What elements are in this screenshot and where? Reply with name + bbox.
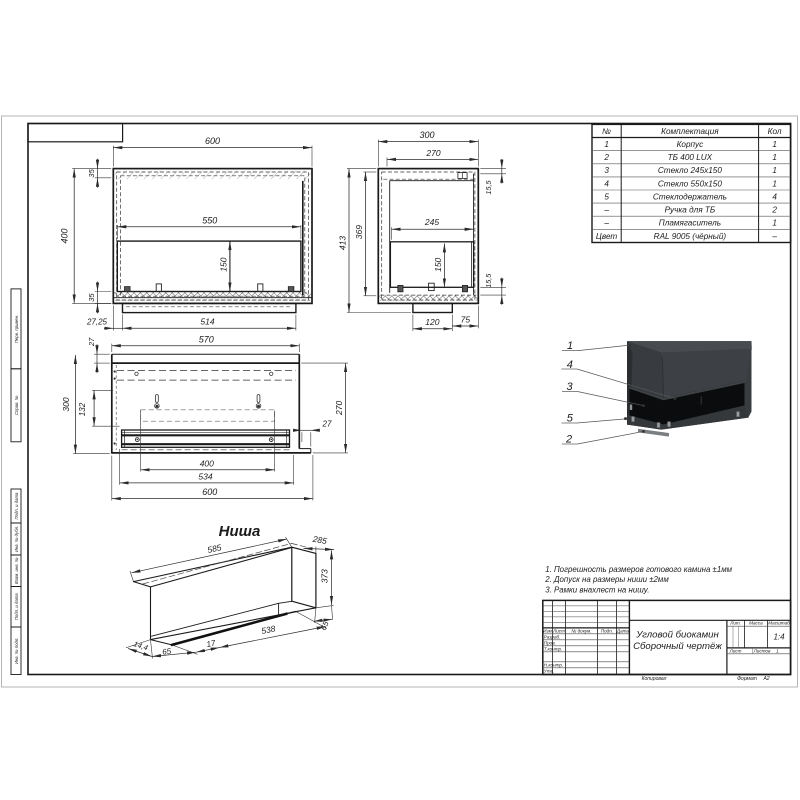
- svg-text:1: 1: [772, 179, 777, 188]
- svg-text:Кол: Кол: [768, 127, 782, 136]
- svg-text:534: 534: [198, 472, 212, 482]
- svg-text:35: 35: [87, 168, 96, 177]
- svg-text:373: 373: [320, 569, 330, 583]
- svg-text:2: 2: [603, 153, 609, 162]
- svg-text:Цвет: Цвет: [596, 232, 618, 241]
- svg-text:150: 150: [218, 257, 228, 271]
- svg-text:600: 600: [205, 136, 220, 146]
- svg-text:Угловой биокамин: Угловой биокамин: [635, 630, 719, 641]
- svg-text:ТБ 400 LUX: ТБ 400 LUX: [668, 153, 713, 162]
- svg-text:1: 1: [772, 219, 777, 228]
- svg-text:Листов: Листов: [753, 648, 771, 653]
- svg-text:2. Допуск на размеры ниши ±2мм: 2. Допуск на размеры ниши ±2мм: [544, 575, 669, 584]
- svg-text:Т.контр.: Т.контр.: [544, 647, 563, 652]
- svg-text:RAL 9005 (чёрный): RAL 9005 (чёрный): [654, 232, 727, 241]
- svg-text:Комплектация: Комплектация: [661, 127, 719, 136]
- svg-text:Лит.: Лит.: [729, 621, 741, 626]
- svg-text:413: 413: [337, 236, 347, 250]
- svg-text:15,5: 15,5: [484, 180, 493, 195]
- svg-text:Справ. №: Справ. №: [14, 395, 19, 415]
- svg-text:2: 2: [771, 206, 777, 215]
- svg-text:132: 132: [78, 402, 87, 416]
- svg-text:4: 4: [604, 179, 609, 188]
- svg-text:Формат: Формат: [737, 676, 757, 682]
- svg-text:Стекло 550х150: Стекло 550х150: [658, 179, 722, 188]
- svg-text:1: 1: [772, 140, 777, 149]
- svg-text:570: 570: [199, 334, 214, 344]
- svg-text:514: 514: [200, 317, 214, 327]
- svg-text:№ докум.: № докум.: [571, 629, 591, 634]
- svg-text:Изм: Изм: [543, 629, 552, 634]
- svg-text:1: 1: [776, 648, 779, 654]
- svg-text:Стеклодержатель: Стеклодержатель: [653, 193, 727, 202]
- svg-text:3: 3: [604, 166, 609, 175]
- svg-text:1: 1: [604, 140, 609, 149]
- svg-text:Масштаб: Масштаб: [768, 621, 790, 626]
- svg-text:Подп. и дата: Подп. и дата: [14, 593, 19, 621]
- svg-text:А2: А2: [762, 676, 769, 682]
- svg-text:Лист: Лист: [729, 648, 742, 653]
- svg-text:1: 1: [772, 166, 777, 175]
- svg-text:–: –: [603, 206, 609, 215]
- svg-text:–: –: [771, 232, 777, 241]
- svg-text:27,25: 27,25: [86, 318, 108, 327]
- svg-text:300: 300: [419, 130, 434, 140]
- svg-text:27: 27: [87, 337, 96, 347]
- svg-text:150: 150: [433, 257, 443, 271]
- svg-text:Разраб.: Разраб.: [544, 635, 561, 640]
- svg-text:Стекло 245х150: Стекло 245х150: [658, 166, 722, 175]
- svg-text:Копировал: Копировал: [642, 676, 667, 682]
- svg-text:Подп.: Подп.: [601, 629, 613, 634]
- svg-text:1: 1: [772, 153, 777, 162]
- svg-text:Инв. № дубл.: Инв. № дубл.: [14, 526, 19, 552]
- svg-text:3. Рамки внахлест на нишу.: 3. Рамки внахлест на нишу.: [545, 585, 649, 594]
- svg-text:Н.контр.: Н.контр.: [544, 663, 563, 668]
- svg-text:1. Погрешность размеров готово: 1. Погрешность размеров готового камина …: [545, 565, 732, 574]
- svg-text:Подп. и дата: Подп. и дата: [14, 492, 19, 520]
- svg-text:400: 400: [60, 228, 70, 243]
- svg-text:Инв. № подл.: Инв. № подл.: [14, 637, 19, 664]
- svg-text:–: –: [603, 219, 609, 228]
- svg-text:Лист: Лист: [552, 629, 565, 634]
- svg-text:Взам. инв. №: Взам. инв. №: [14, 557, 19, 584]
- svg-text:15,5: 15,5: [484, 273, 493, 288]
- svg-text:Пров.: Пров.: [544, 641, 556, 646]
- svg-text:Перв. примен.: Перв. примен.: [14, 315, 19, 344]
- svg-text:Масса: Масса: [749, 621, 763, 626]
- svg-text:Дата: Дата: [616, 629, 630, 634]
- svg-text:Корпус: Корпус: [677, 140, 704, 149]
- svg-text:270: 270: [334, 401, 344, 416]
- svg-text:Ниша: Ниша: [219, 523, 261, 540]
- svg-text:550: 550: [202, 215, 217, 225]
- svg-text:27: 27: [322, 419, 332, 428]
- svg-text:Ручка для ТБ: Ручка для ТБ: [665, 206, 716, 215]
- svg-text:35: 35: [87, 293, 96, 302]
- svg-text:№: №: [602, 127, 611, 136]
- svg-text:270: 270: [425, 148, 440, 158]
- svg-text:600: 600: [202, 487, 217, 497]
- svg-text:245: 245: [424, 217, 439, 227]
- svg-text:Пламягаситель: Пламягаситель: [659, 219, 721, 228]
- svg-text:400: 400: [200, 458, 214, 468]
- svg-text:4: 4: [772, 193, 777, 202]
- svg-text:Утв.: Утв.: [544, 669, 554, 674]
- svg-text:75: 75: [461, 314, 471, 324]
- svg-text:1:4: 1:4: [773, 633, 785, 642]
- svg-text:65: 65: [162, 647, 173, 657]
- svg-text:5: 5: [604, 193, 609, 202]
- svg-text:369: 369: [354, 225, 364, 239]
- svg-text:Сборочный чертёж: Сборочный чертёж: [633, 641, 722, 652]
- svg-text:300: 300: [61, 397, 71, 411]
- svg-text:120: 120: [425, 317, 439, 327]
